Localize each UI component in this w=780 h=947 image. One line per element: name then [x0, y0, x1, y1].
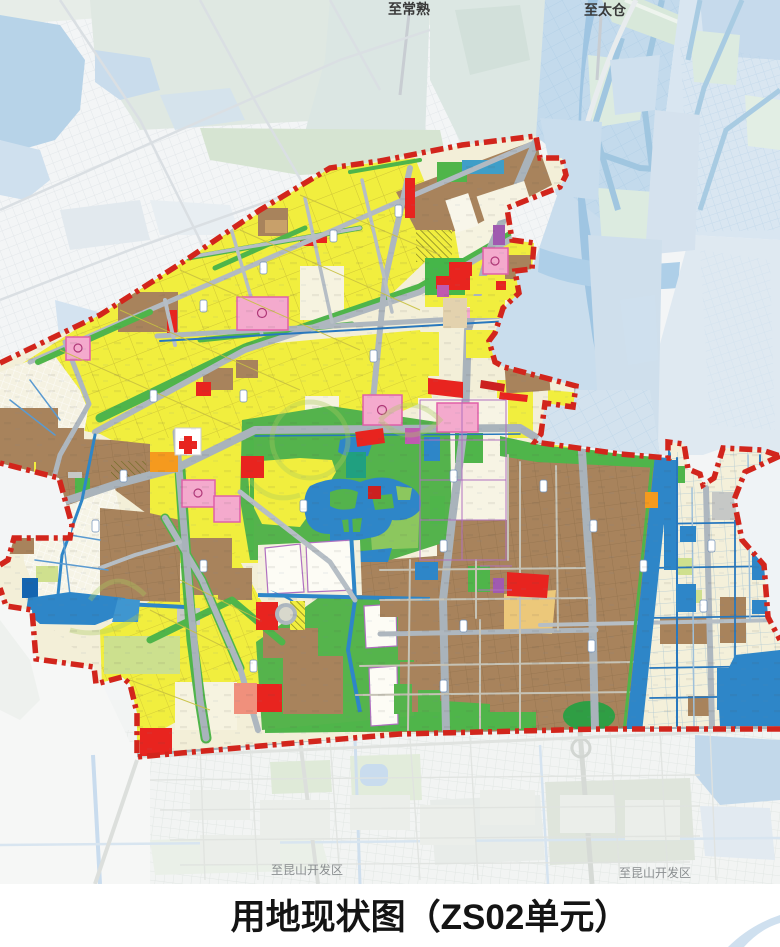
svg-text:至昆山开发区: 至昆山开发区 [271, 862, 343, 877]
svg-text:至常熟: 至常熟 [388, 1, 430, 17]
svg-text:至太仓: 至太仓 [584, 2, 627, 18]
svg-text:至昆山开发区: 至昆山开发区 [619, 865, 691, 880]
